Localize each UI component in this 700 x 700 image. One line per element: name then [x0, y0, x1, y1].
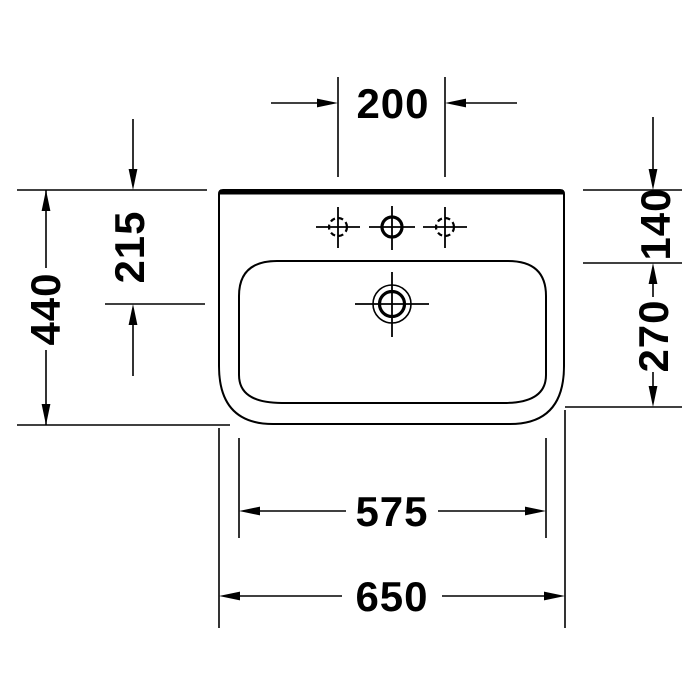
dimension-label-215: 215 [106, 210, 153, 283]
arrowhead-left [239, 507, 260, 516]
washbasin-technical-drawing: 200 440 215 140 [0, 0, 700, 700]
dimension-label-575: 575 [355, 488, 428, 535]
dimension-tap-hole-spacing: 200 [271, 77, 517, 177]
arrowhead-down [649, 169, 658, 190]
tap-holes [316, 206, 467, 250]
arrowhead-left [219, 592, 240, 601]
arrowhead-down [129, 169, 138, 190]
dimension-label-200: 200 [356, 80, 429, 127]
arrowhead-right [544, 592, 565, 601]
dimension-bowl-width: 575 [239, 438, 546, 538]
overflow-hole [355, 272, 429, 337]
tap-hole-left [316, 207, 360, 248]
arrowhead-down [42, 404, 51, 425]
arrowhead-down [649, 386, 658, 407]
tap-hole-center [369, 206, 415, 250]
dimension-label-440: 440 [22, 272, 69, 345]
dimension-rim-to-overflow: 215 [105, 119, 205, 376]
dimension-rim-to-bowl-top: 140 [583, 117, 682, 263]
dimension-bowl-depth: 270 [565, 263, 682, 407]
dimension-label-140: 140 [632, 187, 679, 260]
arrowhead-up [129, 304, 138, 325]
arrowhead-left [445, 99, 466, 108]
arrowhead-up [42, 190, 51, 211]
tap-hole-right [423, 207, 467, 248]
arrowhead-right [525, 507, 546, 516]
dimension-label-650: 650 [355, 573, 428, 620]
dimension-label-270: 270 [630, 299, 677, 372]
dimension-drawing-canvas: 200 440 215 140 [0, 0, 700, 700]
arrowhead-right [317, 99, 338, 108]
arrowhead-up [649, 263, 658, 284]
